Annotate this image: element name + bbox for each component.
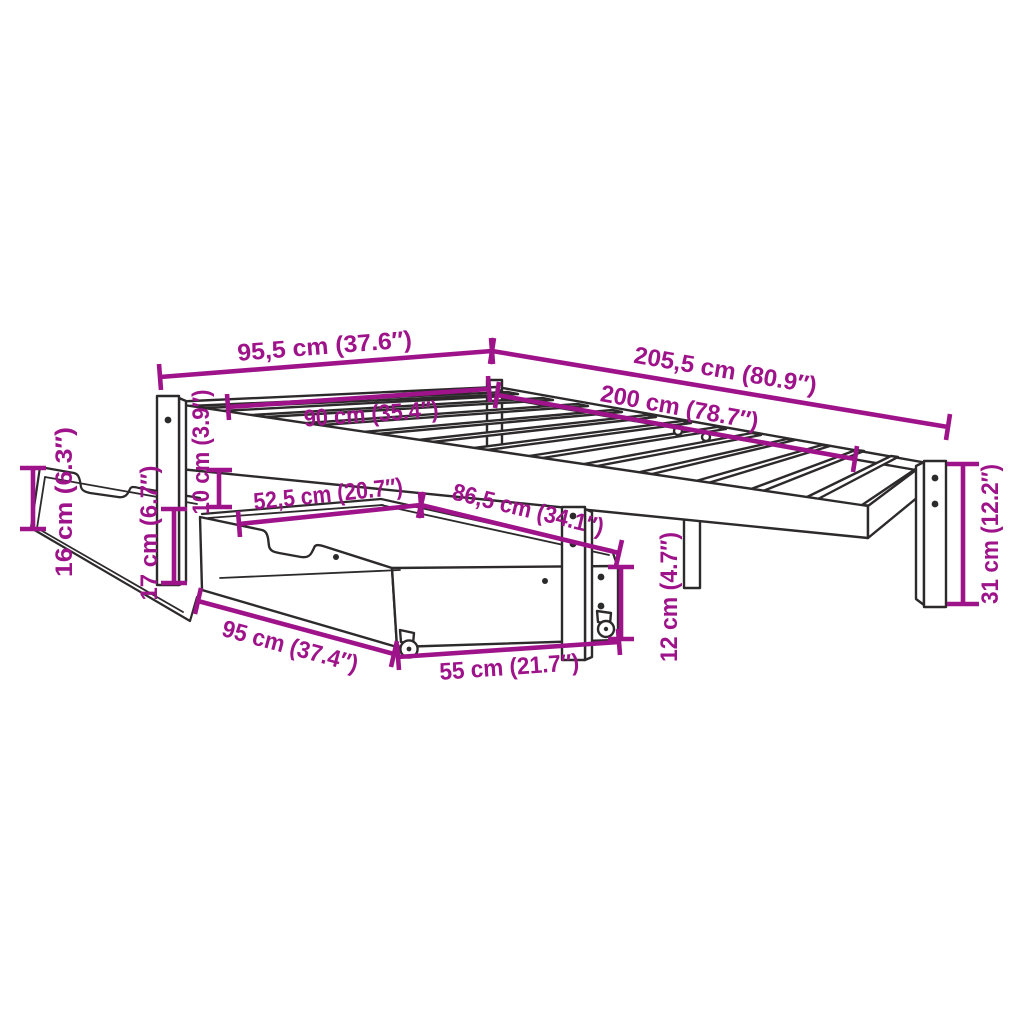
caster-wheel [597,611,614,637]
screw [932,475,939,482]
screw [598,603,605,610]
right-leg [916,461,946,607]
dimension-drawer-side-height-label: 12 cm (4.7″) [656,532,683,662]
dimension-leg-height: 31 cm (12.2″) [947,464,1004,604]
dimension-drawer-back-height-label: 16 cm (6.3″) [51,427,78,577]
dimension-drawer-front-height-label: 17 cm (6.7″) [136,466,163,601]
screw [333,554,339,560]
far-middle-leg [684,512,700,588]
dimension-leg-height-label: 31 cm (12.2″) [977,464,1004,604]
screw [598,574,605,581]
diagram-canvas: 95,5 cm (37.6″) 205,5 cm (80.9″) 90 cm (… [0,0,1024,1024]
screw [542,578,548,584]
caster-wheel [400,630,418,658]
dimension-drawer-back-height: 16 cm (6.3″) [20,427,78,577]
dimension-clearance-height-label: 10 cm (3.9″) [188,390,215,515]
screw [165,417,172,424]
screw [932,501,939,508]
bed-frame-dimension-diagram: 95,5 cm (37.6″) 205,5 cm (80.9″) 90 cm (… [0,0,1024,1024]
dimension-drawer-offset: 52,5 cm (20.7″) [238,473,422,537]
dimension-outer-width: 95,5 cm (37.6″) [159,326,493,390]
